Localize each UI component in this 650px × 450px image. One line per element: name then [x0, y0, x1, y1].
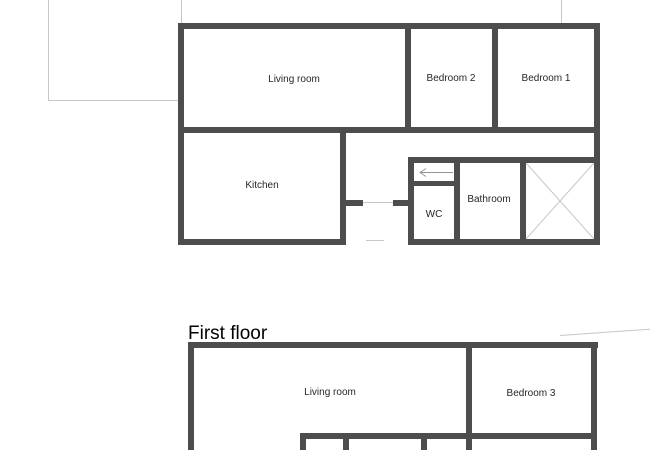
- room-label-bedroom-3: Bedroom 3: [507, 388, 556, 400]
- wall-stub-2: [343, 439, 349, 450]
- floor-plan-canvas: Living room Bedroom 2 Bedroom 1 Kitchen …: [0, 0, 650, 450]
- wall-outer-top: [188, 342, 598, 348]
- room-label-living-room: Living room: [304, 387, 356, 399]
- boundary-line: [560, 329, 650, 336]
- wall-livingroom-bedroom3: [466, 348, 472, 440]
- first-floor-title: First floor: [188, 324, 267, 344]
- wall-stub-3: [421, 439, 427, 450]
- wall-stub-4: [466, 439, 472, 450]
- first-floor-plan: First floor Living room Bedroom 3: [0, 0, 650, 450]
- wall-stub-1: [300, 439, 306, 450]
- wall-outer-left: [188, 342, 194, 450]
